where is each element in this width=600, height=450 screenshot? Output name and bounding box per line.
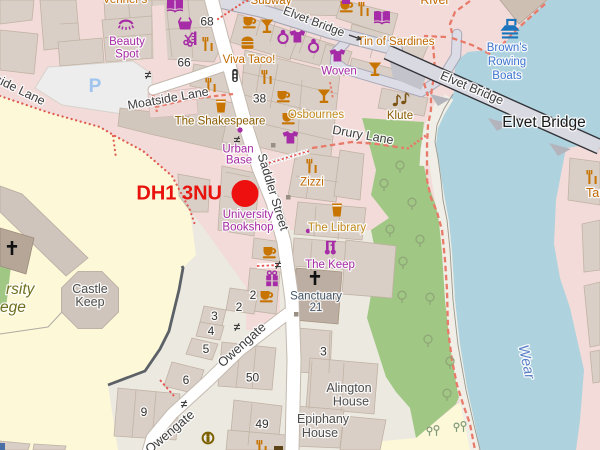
svg-text:Rowing: Rowing [488,56,526,68]
svg-text:2: 2 [250,288,257,302]
svg-text:Zizzi: Zizzi [300,177,324,189]
svg-text:House: House [333,395,369,409]
svg-text:Klute: Klute [387,110,413,122]
svg-text:38: 38 [253,92,267,106]
svg-text:Elvet Bridge: Elvet Bridge [502,114,586,131]
svg-text:Osbournes: Osbournes [288,109,345,121]
svg-text:50: 50 [246,371,260,385]
svg-text:Keep: Keep [75,295,104,309]
svg-text:The Library: The Library [308,222,366,234]
svg-text:21: 21 [310,302,323,314]
svg-text:Brown's: Brown's [487,42,528,54]
svg-text:Viva Taco!: Viva Taco! [223,54,276,66]
svg-text:DH1 3NU: DH1 3NU [136,183,222,205]
svg-text:ege: ege [0,299,26,316]
svg-text:3: 3 [211,309,218,323]
svg-text:9: 9 [141,405,148,419]
svg-text:Epiphany: Epiphany [297,412,350,426]
svg-text:3: 3 [320,345,327,359]
svg-text:Tan: Tan [586,186,600,200]
svg-text:Base: Base [226,155,252,167]
svg-text:The Shakespeare: The Shakespeare [175,116,266,128]
svg-text:Venner's: Venner's [103,0,148,6]
svg-text:6: 6 [183,373,190,387]
svg-text:66: 66 [177,56,191,70]
svg-text:49: 49 [255,417,269,431]
svg-text:P: P [89,76,102,97]
svg-text:Castle: Castle [72,282,107,296]
svg-text:House: House [302,426,338,440]
svg-text:4: 4 [208,324,215,338]
svg-text:The Keep: The Keep [305,259,355,271]
svg-text:Alington: Alington [326,381,371,395]
svg-text:Beauty: Beauty [109,36,145,48]
svg-text:University: University [223,209,274,221]
svg-text:68: 68 [200,15,214,29]
svg-text:Bookshop: Bookshop [222,222,273,234]
svg-text:2: 2 [236,300,243,314]
svg-text:Tin of Sardines: Tin of Sardines [358,36,435,48]
svg-text:Boats: Boats [492,70,522,82]
svg-text:Spot: Spot [115,49,139,61]
svg-text:5: 5 [203,342,210,356]
svg-text:Sanctuary: Sanctuary [290,291,342,303]
svg-text:Woven: Woven [321,66,357,78]
svg-text:River: River [420,0,449,7]
svg-text:rsity: rsity [6,281,36,298]
